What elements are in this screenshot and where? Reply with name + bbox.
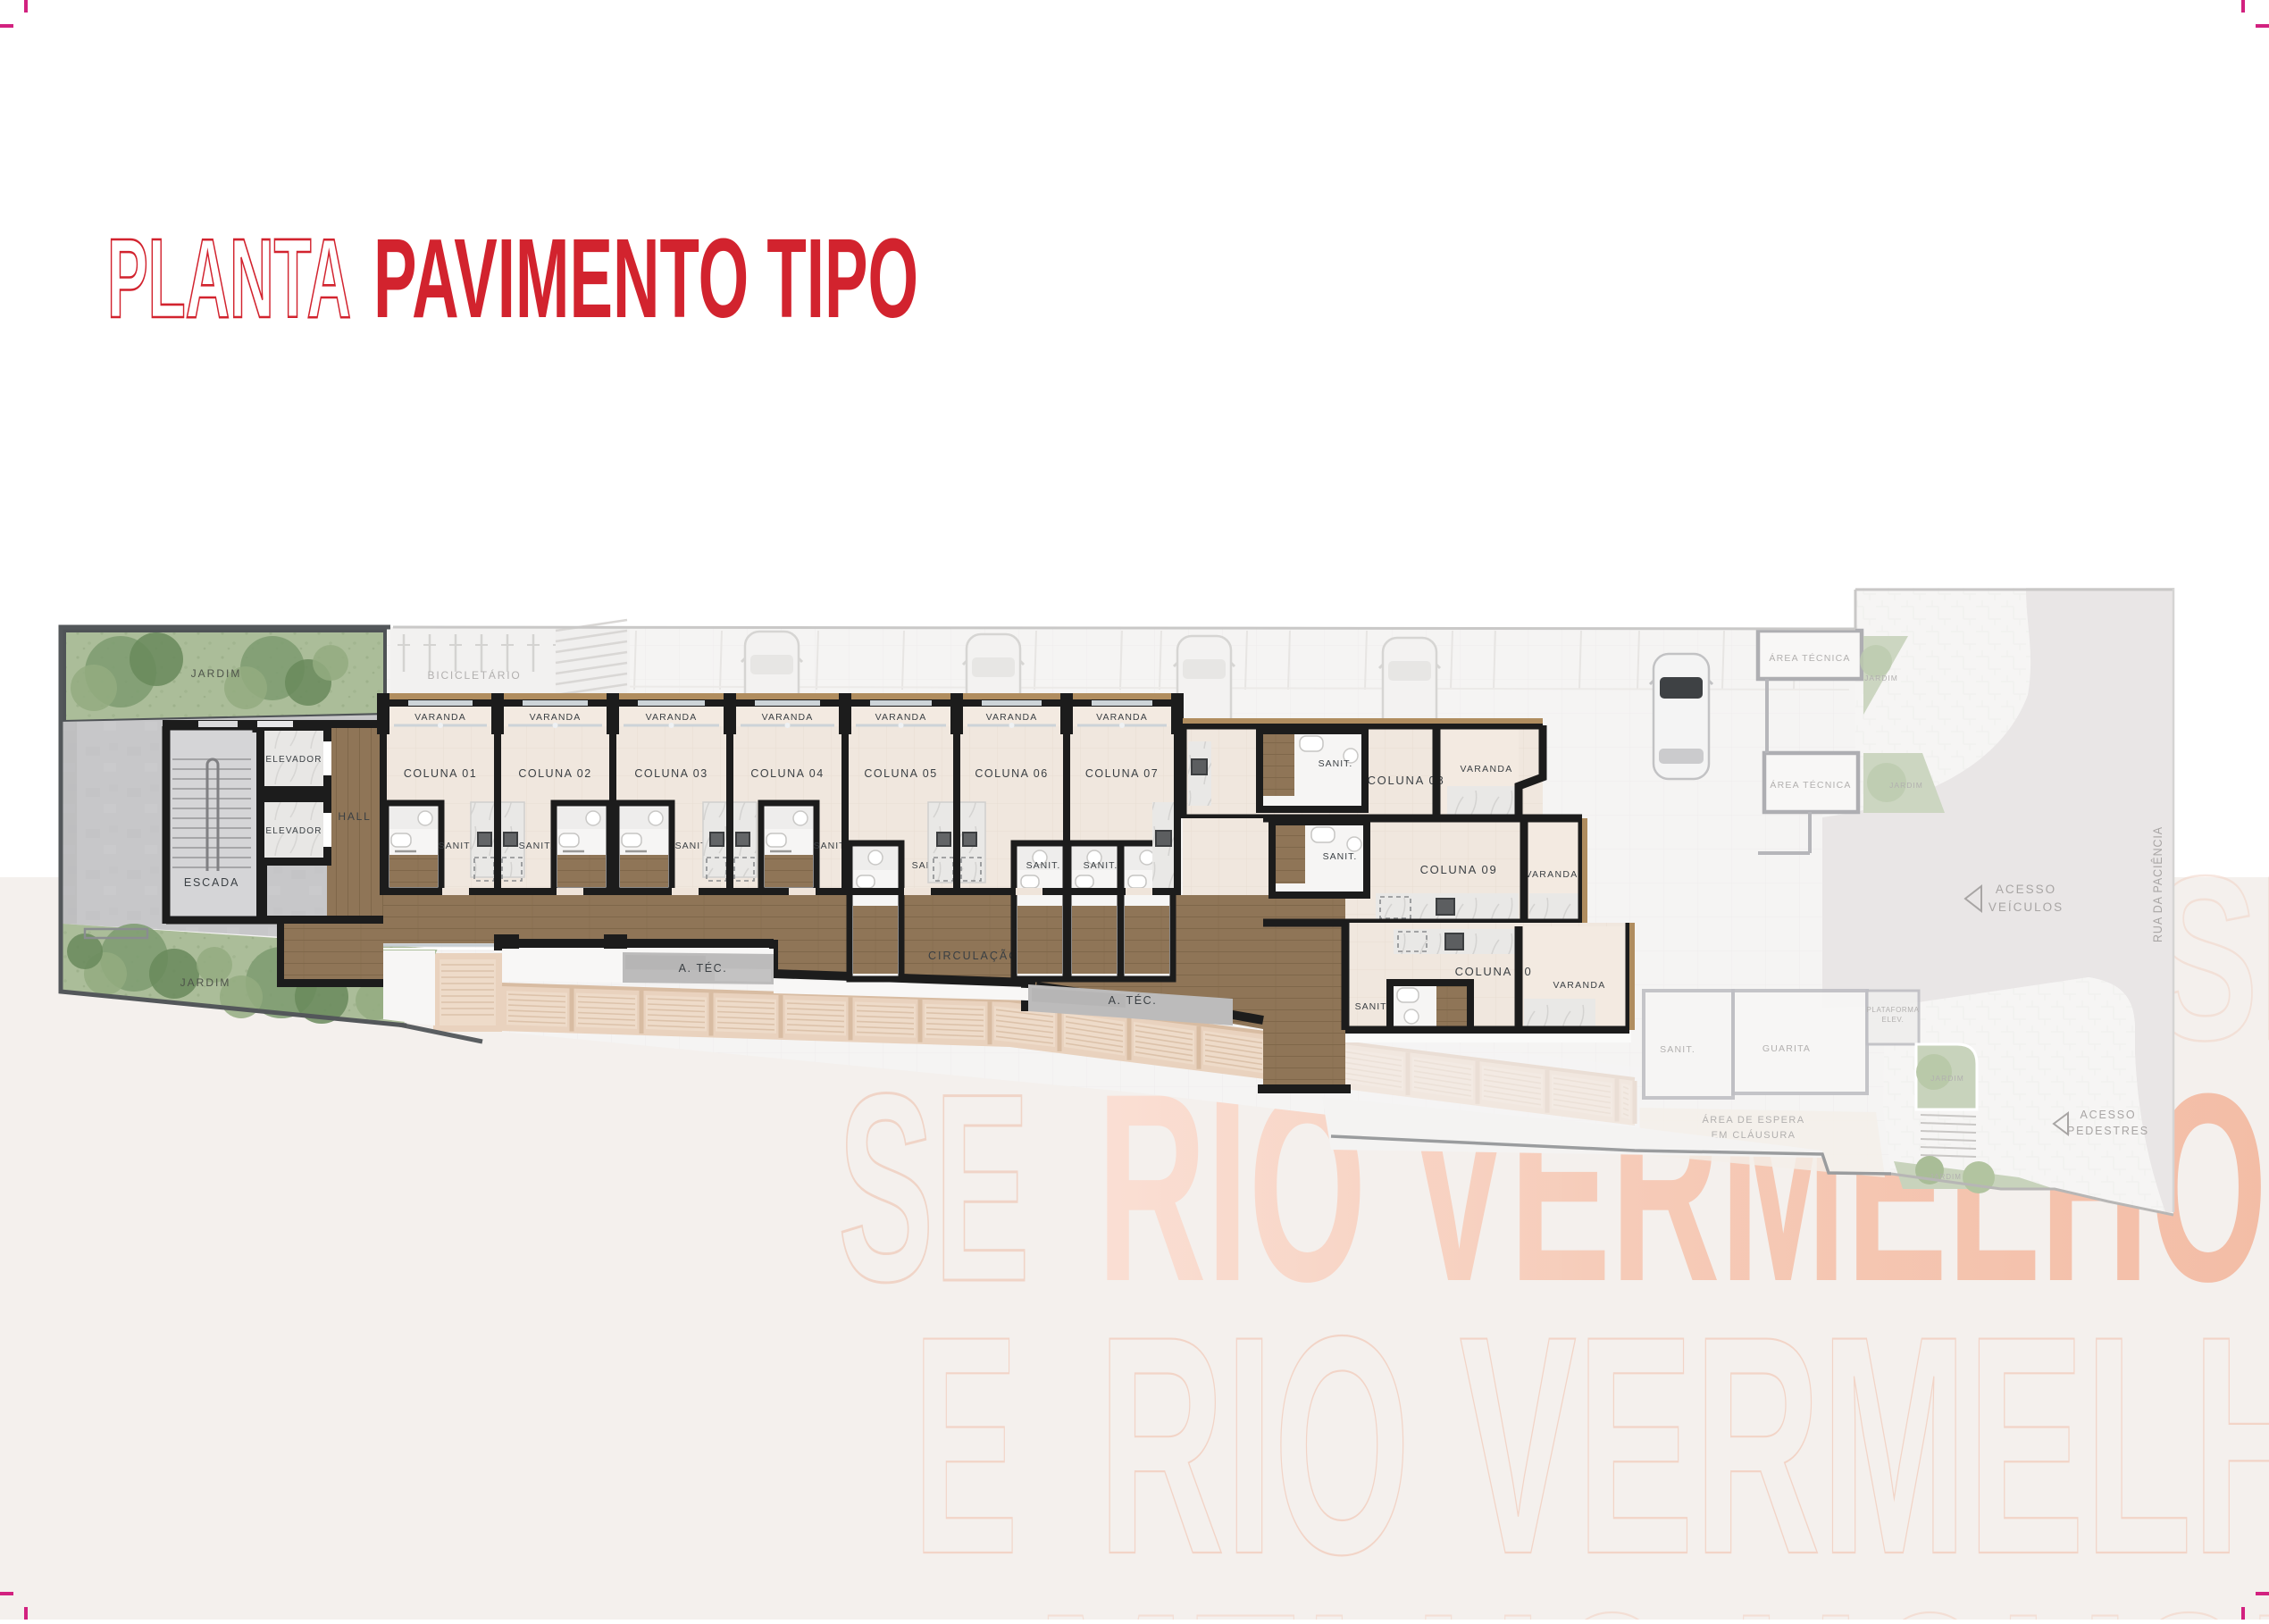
svg-text:COLUNA 02: COLUNA 02: [518, 767, 591, 780]
svg-text:RUA DA PACIÊNCIA: RUA DA PACIÊNCIA: [2151, 826, 2164, 942]
svg-text:VARANDA: VARANDA: [1525, 869, 1578, 880]
svg-text:ACESSO: ACESSO: [2081, 1109, 2137, 1121]
svg-text:A. TÉC.: A. TÉC.: [679, 961, 728, 975]
svg-text:COLUNA 03: COLUNA 03: [634, 767, 707, 780]
svg-text:ACESSO: ACESSO: [1996, 883, 2056, 896]
svg-text:PEDESTRES: PEDESTRES: [2067, 1125, 2149, 1137]
svg-text:COLUNA 07: COLUNA 07: [1085, 767, 1159, 780]
svg-text:PAVIMENTO TIPO: PAVIMENTO TIPO: [373, 215, 918, 341]
svg-text:VARANDA: VARANDA: [1460, 764, 1512, 774]
svg-text:E: E: [913, 1271, 1018, 1619]
svg-text:VARANDA: VARANDA: [986, 712, 1038, 723]
svg-text:SANIT.: SANIT.: [1323, 851, 1358, 862]
svg-text:COLUNA 04: COLUNA 04: [750, 767, 824, 780]
svg-text:ELEVADOR: ELEVADOR: [265, 826, 322, 836]
svg-text:ÁREA DE ESPERA: ÁREA DE ESPERA: [1703, 1114, 1805, 1126]
svg-text:JARDIM: JARDIM: [191, 667, 242, 680]
svg-text:GUARITA: GUARITA: [1762, 1043, 1811, 1054]
svg-text:SANIT.: SANIT.: [439, 841, 473, 851]
svg-text:A. TÉC.: A. TÉC.: [1109, 993, 1158, 1007]
svg-text:SANIT.: SANIT.: [1084, 860, 1118, 871]
svg-text:VARANDA: VARANDA: [875, 712, 927, 723]
svg-text:JARDIM: JARDIM: [1889, 781, 1923, 790]
svg-text:ELEV.: ELEV.: [1882, 1016, 1905, 1024]
svg-text:PLANTA: PLANTA: [107, 215, 351, 341]
svg-text:JARDIM: JARDIM: [1930, 1074, 1964, 1083]
svg-text:PLATAFORMA: PLATAFORMA: [1866, 1006, 1919, 1014]
svg-text:COLUNA 05: COLUNA 05: [864, 767, 937, 780]
svg-text:JARDIM: JARDIM: [180, 976, 231, 989]
svg-text:BICICLETÁRIO: BICICLETÁRIO: [428, 668, 522, 682]
svg-text:ESCADA: ESCADA: [184, 876, 239, 889]
svg-text:VARANDA: VARANDA: [414, 712, 466, 723]
svg-text:VARANDA: VARANDA: [762, 712, 814, 723]
svg-text:VARANDA: VARANDA: [530, 712, 582, 723]
svg-text:SANIT.: SANIT.: [519, 841, 554, 851]
svg-text:HALL: HALL: [338, 810, 371, 823]
svg-text:SANIT.: SANIT.: [1026, 860, 1061, 871]
svg-text:ELEVADOR: ELEVADOR: [265, 755, 322, 765]
svg-text:SANIT.: SANIT.: [1355, 1001, 1390, 1012]
svg-text:ÁREA TÉCNICA: ÁREA TÉCNICA: [1769, 652, 1850, 664]
svg-text:COLUNA 01: COLUNA 01: [404, 767, 477, 780]
svg-text:CIRCULAÇÃO: CIRCULAÇÃO: [928, 950, 1019, 962]
svg-text:MELHO HOUSE: MELHO HOUSE: [1036, 1548, 2269, 1620]
svg-text:SANIT.: SANIT.: [1319, 758, 1353, 769]
svg-text:JARDIM: JARDIM: [1864, 674, 1898, 682]
svg-text:VARANDA: VARANDA: [1096, 712, 1148, 723]
svg-text:VARANDA: VARANDA: [646, 712, 698, 723]
svg-text:VARANDA: VARANDA: [1553, 980, 1605, 991]
svg-text:SANIT.: SANIT.: [1660, 1044, 1695, 1055]
svg-text:COLUNA 09: COLUNA 09: [1420, 863, 1498, 876]
svg-text:VEÍCULOS: VEÍCULOS: [1989, 900, 2064, 914]
svg-text:COLUNA 06: COLUNA 06: [975, 767, 1048, 780]
svg-text:ÁREA TÉCNICA: ÁREA TÉCNICA: [1770, 779, 1851, 791]
